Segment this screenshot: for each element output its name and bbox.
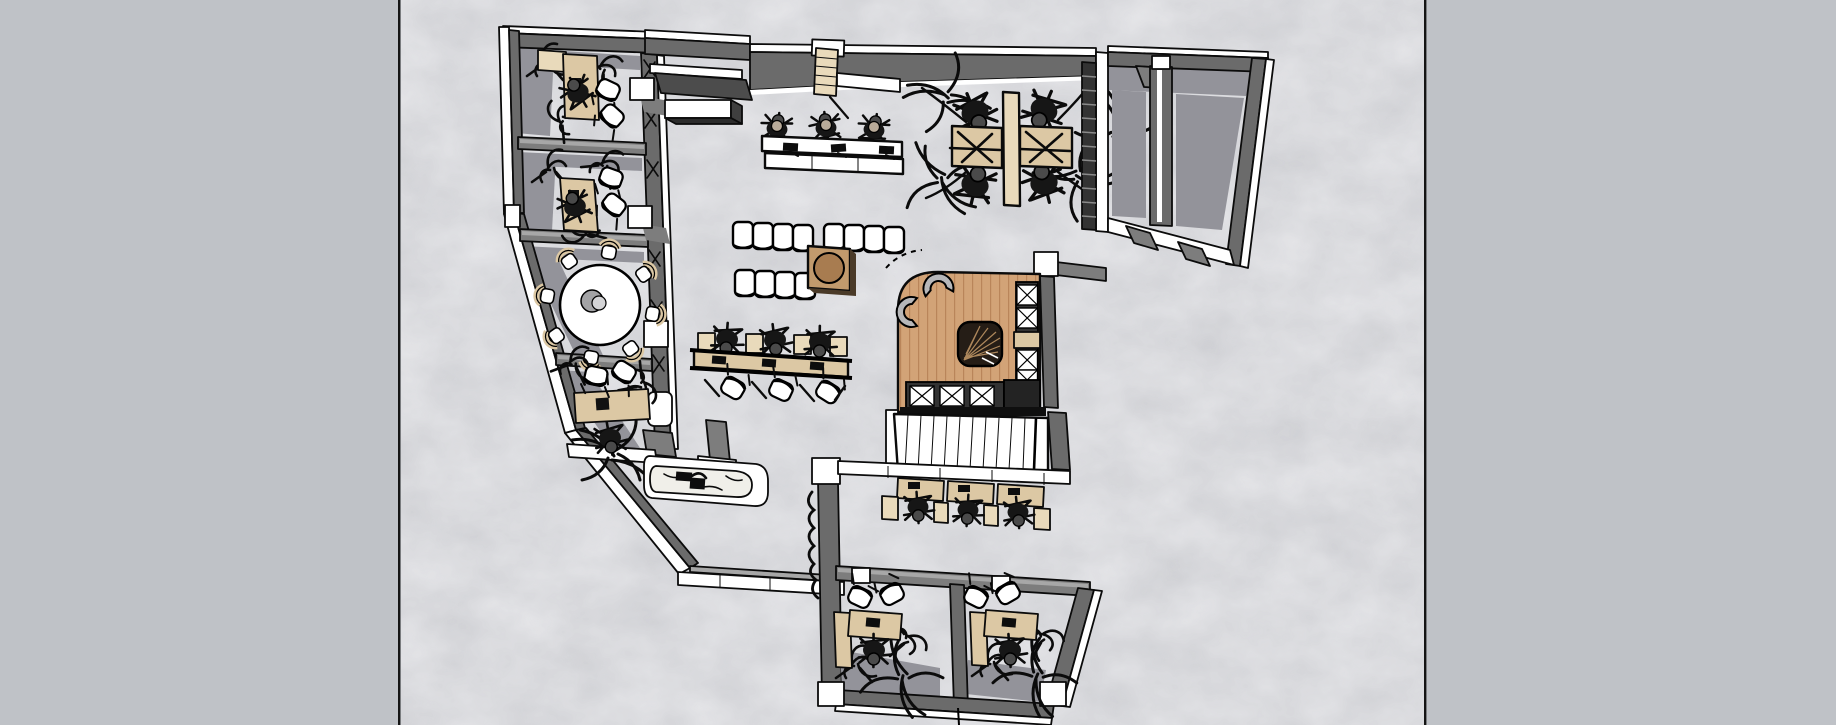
- staircase: [886, 410, 1070, 472]
- floor-plan-drawing: [0, 0, 1836, 725]
- lounge-right-wall: [1040, 276, 1058, 408]
- stair-side-wall: [1048, 412, 1070, 470]
- lounge-shelving-bottom: [900, 380, 1046, 416]
- bottom-offices-divider: [950, 584, 968, 708]
- lounge-shelving-right: [1014, 282, 1040, 390]
- right-frame-line: [1424, 0, 1426, 725]
- left-frame-line: [398, 0, 400, 725]
- cluster-partition: [1003, 92, 1020, 206]
- storage-left-wall: [1096, 52, 1108, 232]
- floor-plan-viewport[interactable]: [0, 0, 1836, 725]
- tall-shelf-unit: [1082, 62, 1096, 230]
- coffee-table: [808, 246, 856, 296]
- entry-credenza: [665, 100, 742, 124]
- lounge-rug: [958, 322, 1002, 366]
- reception-counter: [759, 110, 903, 174]
